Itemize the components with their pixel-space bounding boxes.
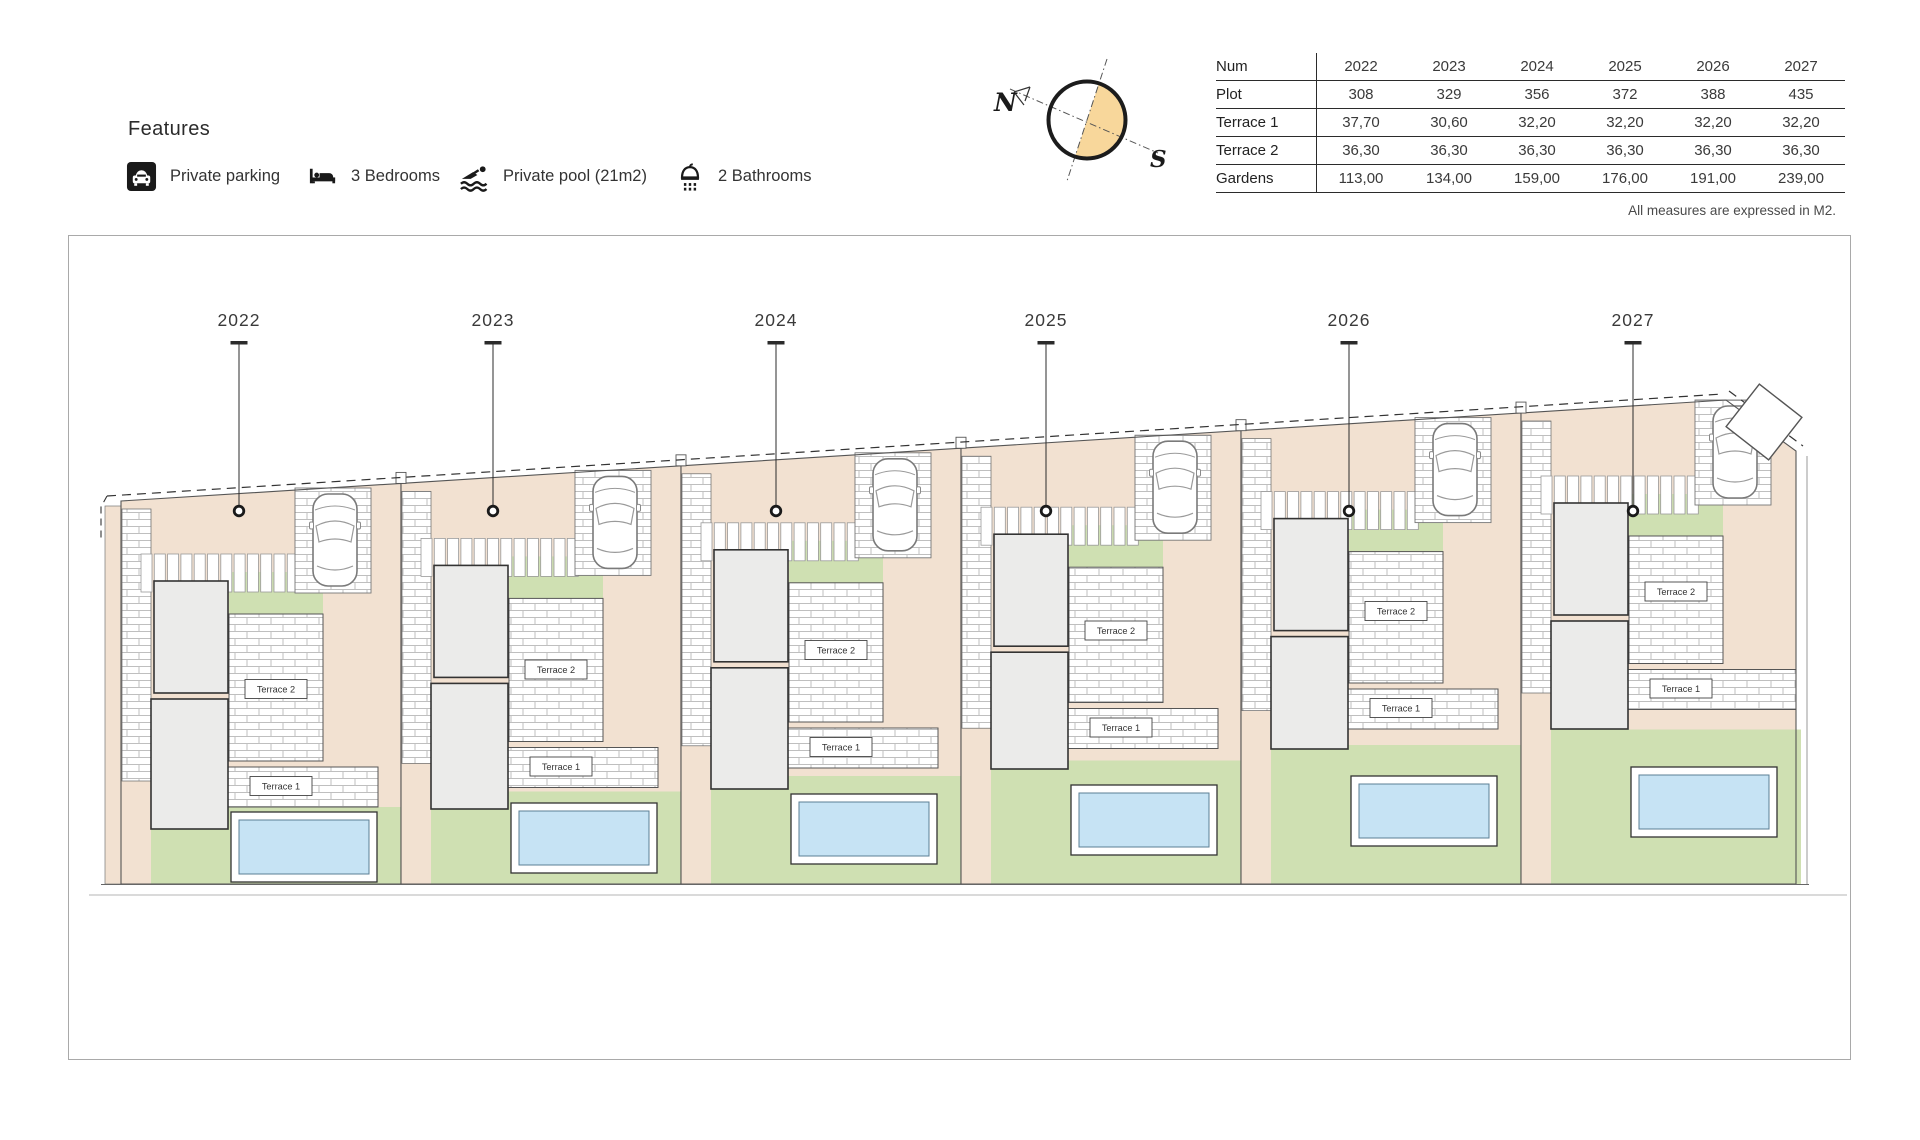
compass-rose: N S (990, 45, 1170, 195)
row-value: 329 (1405, 81, 1493, 109)
row-value: 356 (1493, 81, 1581, 109)
pool-water (799, 802, 929, 856)
house-block (711, 668, 788, 789)
site-plan-box: Terrace 2 Terrace 12022 Terrace 2 Terrac… (68, 235, 1851, 1060)
pool-water (519, 811, 649, 865)
feature-label: Private parking (170, 167, 280, 186)
pergola-slat (807, 523, 818, 561)
pergola-slat (541, 538, 552, 576)
row-label: Plot (1216, 81, 1317, 109)
row-value: 36,30 (1493, 137, 1581, 165)
plot-marker (771, 506, 781, 516)
feature-label: 3 Bedrooms (351, 167, 440, 186)
pergola-slat (514, 538, 525, 576)
terrace1-label: Terrace 1 (1090, 718, 1152, 737)
pergola-slat (1354, 492, 1365, 530)
measures-table: Num202220232024202520262027 Plot30832935… (1216, 53, 1845, 193)
plot-edge-strip (105, 506, 121, 884)
table-header-year: 2024 (1493, 53, 1581, 81)
side-wall-paving (962, 456, 991, 728)
side-wall-paving (402, 491, 431, 763)
row-value: 32,20 (1669, 109, 1757, 137)
svg-text:Terrace 1: Terrace 1 (1662, 684, 1700, 694)
leader-tick (485, 341, 502, 345)
boundary-notch (956, 437, 966, 448)
pergola-slat (794, 523, 805, 561)
pergola-slat (421, 538, 432, 576)
row-value: 308 (1317, 81, 1406, 109)
features-title: Features (128, 118, 210, 141)
plot-2023: Terrace 2 Terrace 12023 (401, 310, 681, 884)
car-icon (1150, 441, 1201, 533)
feature-bedrooms: 3 Bedrooms (307, 161, 440, 192)
feature-pool: Private pool (21m2) (458, 161, 647, 192)
terrace2-label: Terrace 2 (1085, 621, 1147, 640)
pergola-slat (247, 554, 258, 592)
plot-marker (234, 506, 244, 516)
plot-2024: Terrace 2 Terrace 12024 (681, 310, 961, 884)
pool-water (1359, 784, 1489, 838)
plot-2026: Terrace 2 Terrace 12026 (1241, 310, 1521, 884)
side-wall-paving (1522, 421, 1551, 693)
table-header-row: Num202220232024202520262027 (1216, 53, 1845, 81)
svg-text:Terrace 1: Terrace 1 (822, 743, 860, 753)
terrace2-label: Terrace 2 (245, 680, 307, 699)
leader-tick (1038, 341, 1055, 345)
pergola-slat (1381, 492, 1392, 530)
svg-text:Terrace 1: Terrace 1 (262, 782, 300, 792)
leader-tick (231, 341, 248, 345)
site-plan-drawing: Terrace 2 Terrace 12022 Terrace 2 Terrac… (69, 236, 1850, 1059)
plot-year-label: 2026 (1328, 310, 1371, 330)
terrace2-label: Terrace 2 (1645, 582, 1707, 601)
table-row: Terrace 137,7030,6032,2032,2032,2032,20 (1216, 109, 1845, 137)
leader-tick (768, 341, 785, 345)
row-value: 388 (1669, 81, 1757, 109)
feature-bathrooms: 2 Bathrooms (675, 161, 812, 192)
terrace1-label: Terrace 1 (810, 738, 872, 757)
house-block (994, 534, 1068, 646)
house-block (154, 581, 228, 693)
house-block (1271, 637, 1348, 749)
svg-text:Terrace 1: Terrace 1 (1382, 704, 1420, 714)
row-value: 239,00 (1757, 165, 1845, 193)
svg-text:Terrace 2: Terrace 2 (1097, 626, 1135, 636)
table-header-num: Num (1216, 53, 1317, 81)
feature-private-parking: Private parking (126, 161, 280, 192)
pergola-slat (1087, 507, 1098, 545)
row-label: Terrace 2 (1216, 137, 1317, 165)
house-block (151, 699, 228, 829)
house-block (1551, 621, 1628, 729)
row-value: 36,30 (1757, 137, 1845, 165)
house-block (991, 652, 1068, 769)
feature-label: 2 Bathrooms (718, 167, 812, 186)
bed-icon (307, 161, 338, 192)
pergola-slat (1674, 476, 1685, 514)
table-header-year: 2026 (1669, 53, 1757, 81)
pergola-slat (1367, 492, 1378, 530)
terrace1-label: Terrace 1 (1650, 679, 1712, 698)
row-value: 36,30 (1405, 137, 1493, 165)
pergola-slat (1101, 507, 1112, 545)
pergola-slat (1394, 492, 1405, 530)
plot-year-label: 2027 (1612, 310, 1655, 330)
row-label: Terrace 1 (1216, 109, 1317, 137)
car-icon (590, 476, 641, 568)
pergola-slat (274, 554, 285, 592)
pool-icon (458, 161, 490, 192)
row-value: 32,20 (1493, 109, 1581, 137)
leader-tick (1341, 341, 1358, 345)
plot-marker (1344, 506, 1354, 516)
row-value: 37,70 (1317, 109, 1406, 137)
car-icon (1430, 424, 1481, 516)
compass-south-label: S (1150, 146, 1167, 173)
plot-year-label: 2022 (218, 310, 261, 330)
terrace2-label: Terrace 2 (525, 660, 587, 679)
house-block (1554, 503, 1628, 615)
table-header-year: 2027 (1757, 53, 1845, 81)
pergola-slat (981, 507, 992, 545)
row-value: 134,00 (1405, 165, 1493, 193)
table-row: Gardens113,00134,00159,00176,00191,00239… (1216, 165, 1845, 193)
table-header-year: 2025 (1581, 53, 1669, 81)
plot-year-label: 2024 (755, 310, 798, 330)
pergola-slat (834, 523, 845, 561)
svg-text:Terrace 1: Terrace 1 (1102, 723, 1140, 733)
table-header-year: 2022 (1317, 53, 1406, 81)
shower-icon (675, 161, 705, 192)
row-value: 36,30 (1669, 137, 1757, 165)
row-value: 36,30 (1581, 137, 1669, 165)
compass-north-label: N (993, 88, 1018, 117)
pergola-slat (1647, 476, 1658, 514)
pergola-slat (141, 554, 152, 592)
house-block (434, 565, 508, 677)
row-value: 191,00 (1669, 165, 1757, 193)
pergola-slat (261, 554, 272, 592)
measures-note: All measures are expressed in M2. (1216, 203, 1836, 218)
row-label: Gardens (1216, 165, 1317, 193)
pergola-slat (1541, 476, 1552, 514)
table-header-year: 2023 (1405, 53, 1493, 81)
boundary-notch (1516, 402, 1526, 413)
side-wall-paving (682, 474, 711, 746)
row-value: 32,20 (1757, 109, 1845, 137)
row-value: 435 (1757, 81, 1845, 109)
side-wall-paving (122, 509, 151, 781)
svg-text:Terrace 2: Terrace 2 (1377, 607, 1415, 617)
plot-marker (488, 506, 498, 516)
svg-text:Terrace 2: Terrace 2 (257, 685, 295, 695)
pergola-slat (1074, 507, 1085, 545)
house-block (714, 550, 788, 662)
pergola-slat (527, 538, 538, 576)
plot-2025: Terrace 2 Terrace 12025 (961, 310, 1241, 884)
plot-marker (1041, 506, 1051, 516)
row-value: 36,30 (1317, 137, 1406, 165)
pool-water (1639, 775, 1769, 829)
terrace2-label: Terrace 2 (1365, 602, 1427, 621)
row-value: 176,00 (1581, 165, 1669, 193)
plot-marker (1628, 506, 1638, 516)
house-block (1274, 519, 1348, 631)
plot-year-label: 2023 (472, 310, 515, 330)
row-value: 32,20 (1581, 109, 1669, 137)
pergola-slat (821, 523, 832, 561)
pergola-slat (701, 523, 712, 561)
pergola-slat (1661, 476, 1672, 514)
parking-icon (126, 161, 157, 192)
plot-2022: Terrace 2 Terrace 12022 (105, 310, 401, 884)
car-icon (870, 459, 921, 551)
plot-year-label: 2025 (1025, 310, 1068, 330)
svg-text:Terrace 2: Terrace 2 (1657, 587, 1695, 597)
pergola-slat (1114, 507, 1125, 545)
leader-tick (1625, 341, 1642, 345)
terrace1-label: Terrace 1 (530, 757, 592, 776)
row-value: 113,00 (1317, 165, 1406, 193)
feature-label: Private pool (21m2) (503, 167, 647, 186)
svg-text:Terrace 1: Terrace 1 (542, 762, 580, 772)
terrace1-label: Terrace 1 (1370, 699, 1432, 718)
pool-water (1079, 793, 1209, 847)
terrace1-label: Terrace 1 (250, 777, 312, 796)
row-value: 30,60 (1405, 109, 1493, 137)
car-icon (310, 494, 361, 586)
pergola-slat (1261, 492, 1272, 530)
side-wall-paving (1242, 439, 1271, 711)
house-block (431, 683, 508, 809)
pergola-slat (234, 554, 245, 592)
table-row: Terrace 236,3036,3036,3036,3036,3036,30 (1216, 137, 1845, 165)
svg-text:Terrace 2: Terrace 2 (537, 665, 575, 675)
table-row: Plot308329356372388435 (1216, 81, 1845, 109)
row-value: 372 (1581, 81, 1669, 109)
terrace2-label: Terrace 2 (805, 641, 867, 660)
svg-text:Terrace 2: Terrace 2 (817, 646, 855, 656)
pergola-slat (554, 538, 565, 576)
pool-water (239, 820, 369, 874)
row-value: 159,00 (1493, 165, 1581, 193)
